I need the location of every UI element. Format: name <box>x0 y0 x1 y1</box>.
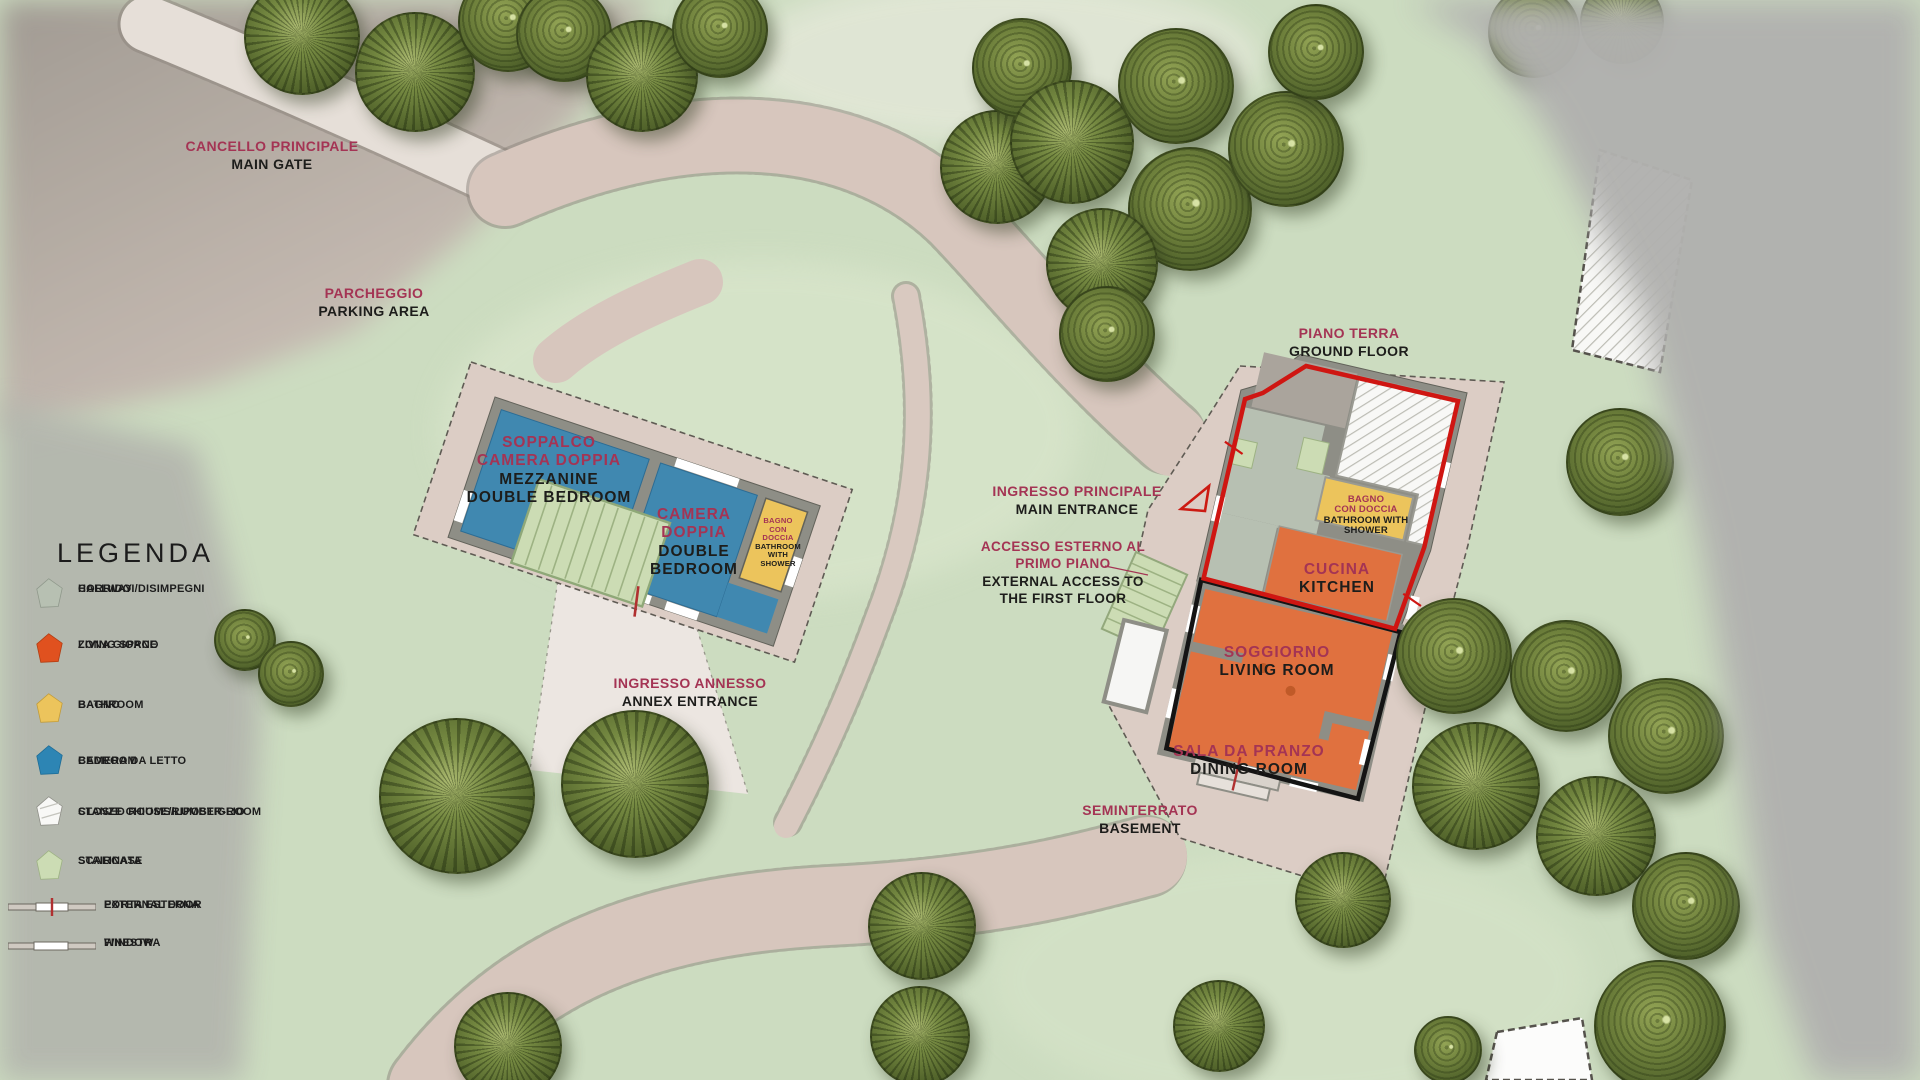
hallway-swatch-icon <box>36 575 63 611</box>
closed-rooms-swatch-icon <box>36 793 63 829</box>
living-space-swatch-icon <box>36 630 63 666</box>
staircase-swatch-icon <box>36 847 63 883</box>
window-symbol-icon <box>8 938 96 954</box>
external-door-symbol-icon <box>8 898 96 916</box>
legend: LEGENDA CORRIDOI/DISIMPEGNI HALLWAY ZONA… <box>0 0 1920 1080</box>
bedroom-swatch-icon <box>36 742 63 778</box>
legend-title: LEGENDA <box>57 538 214 569</box>
bathroom-swatch-icon <box>36 690 63 726</box>
site-plan: CANCELLO PRINCIPALE MAIN GATE PARCHEGGIO… <box>0 0 1920 1080</box>
